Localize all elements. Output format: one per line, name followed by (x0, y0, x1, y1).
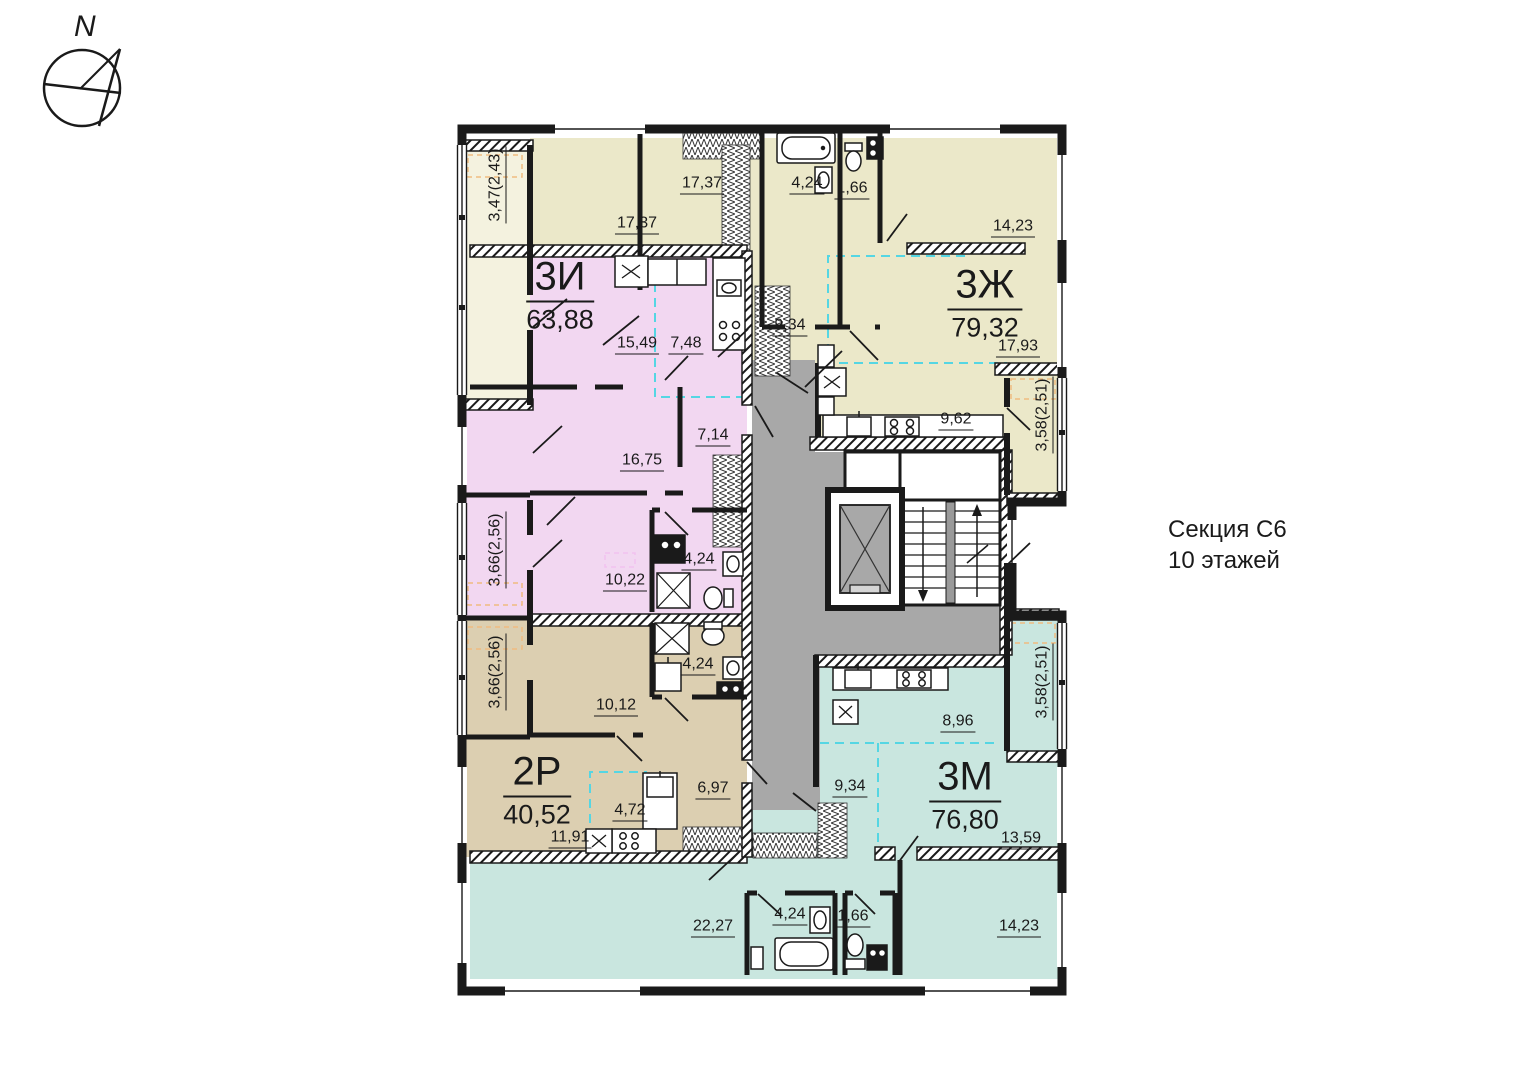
room-label-bedroom1-3i: 16,75 (620, 453, 664, 472)
room-label-bath-3m: 4,24 (772, 907, 807, 926)
room-label-bedroom2-3m: 14,23 (997, 919, 1041, 938)
section-floors: 10 этажей (1168, 545, 1287, 576)
apartment-title-3zh: 3Ж 79,32 (947, 265, 1022, 342)
room-label-bedroom2-3i: 10,22 (603, 573, 647, 592)
compass: N (28, 8, 148, 148)
apartment-title-3m: 3М 76,80 (929, 757, 1001, 834)
room-label-hall-3i: 7,14 (695, 428, 730, 447)
stairwell (828, 452, 1000, 608)
bathtub-icon (777, 133, 835, 163)
toilet-icon (845, 143, 862, 171)
room-label-bedroom-2r: 10,12 (594, 698, 638, 717)
apartment-title-3i: 3И 63,88 (526, 257, 594, 334)
elevator (828, 490, 902, 608)
room-label-loggia-2r: 3,66(2,56) (488, 634, 507, 711)
room-label-hall-3m: 9,34 (832, 779, 867, 798)
room-label-wc-3zh: 1,66 (834, 181, 869, 200)
apartment-name-3zh: 3Ж (947, 265, 1022, 311)
apartment-name-2r: 2Р (503, 752, 571, 798)
apartment-area-2r: 40,52 (503, 798, 571, 829)
floor-plan-page: N Секция С6 10 этажей (0, 0, 1528, 1080)
apartment-name-3i: 3И (526, 257, 594, 303)
section-name: Секция С6 (1168, 514, 1287, 545)
apartment-name-3m: 3М (929, 757, 1001, 803)
room-label-living-3m: 13,59 (999, 831, 1043, 850)
compass-north-label: N (74, 10, 96, 44)
room-label-kitchen-3i: 7,48 (668, 336, 703, 355)
room-label-bedroom1-3zh: 17,37 (615, 216, 659, 235)
room-label-kitchen-3zh: 9,62 (938, 412, 973, 431)
apartment-area-3i: 63,88 (526, 303, 594, 334)
room-label-loggia2-3zh: 3,58(2,51) (1035, 377, 1054, 454)
room-label-bath-3zh: 4,24 (789, 176, 824, 195)
room-label-bath-3i: 4,24 (681, 552, 716, 571)
floor-plan: 3,47(2,43) 17,37 4,24 1,66 17,37 14,23 9… (455, 115, 1075, 1000)
section-note: Секция С6 10 этажей (1168, 514, 1287, 576)
washer-icon (867, 137, 883, 159)
room-label-hall-3zh: 9,34 (772, 318, 807, 337)
room-label-wardrobe-3zh: 17,37 (680, 176, 724, 195)
room-label-loggia-3m: 3,58(2,51) (1035, 644, 1054, 721)
apartment-area-3zh: 79,32 (947, 311, 1022, 342)
apartment-title-2r: 2Р 40,52 (503, 752, 571, 829)
room-label-kitchen-3m: 8,96 (940, 714, 975, 733)
room-label-living-2r: 11,91 (549, 830, 592, 849)
room-label-loggia-3zh: 3,47(2,43) (488, 147, 507, 224)
room-label-bath-2r: 4,24 (680, 657, 715, 676)
room-label-wc-3m: 1,66 (835, 909, 870, 928)
room-label-bedroom1-3m: 22,27 (691, 919, 735, 938)
room-label-hall-2r: 6,97 (695, 781, 730, 800)
room-label-bedroom2-3zh: 14,23 (991, 219, 1035, 238)
room-label-kitchen-2r: 4,72 (612, 803, 647, 822)
apartment-area-3m: 76,80 (929, 803, 1001, 834)
room-label-loggia-3i: 3,66(2,56) (488, 512, 507, 589)
room-label-living-3i: 15,49 (615, 336, 659, 355)
